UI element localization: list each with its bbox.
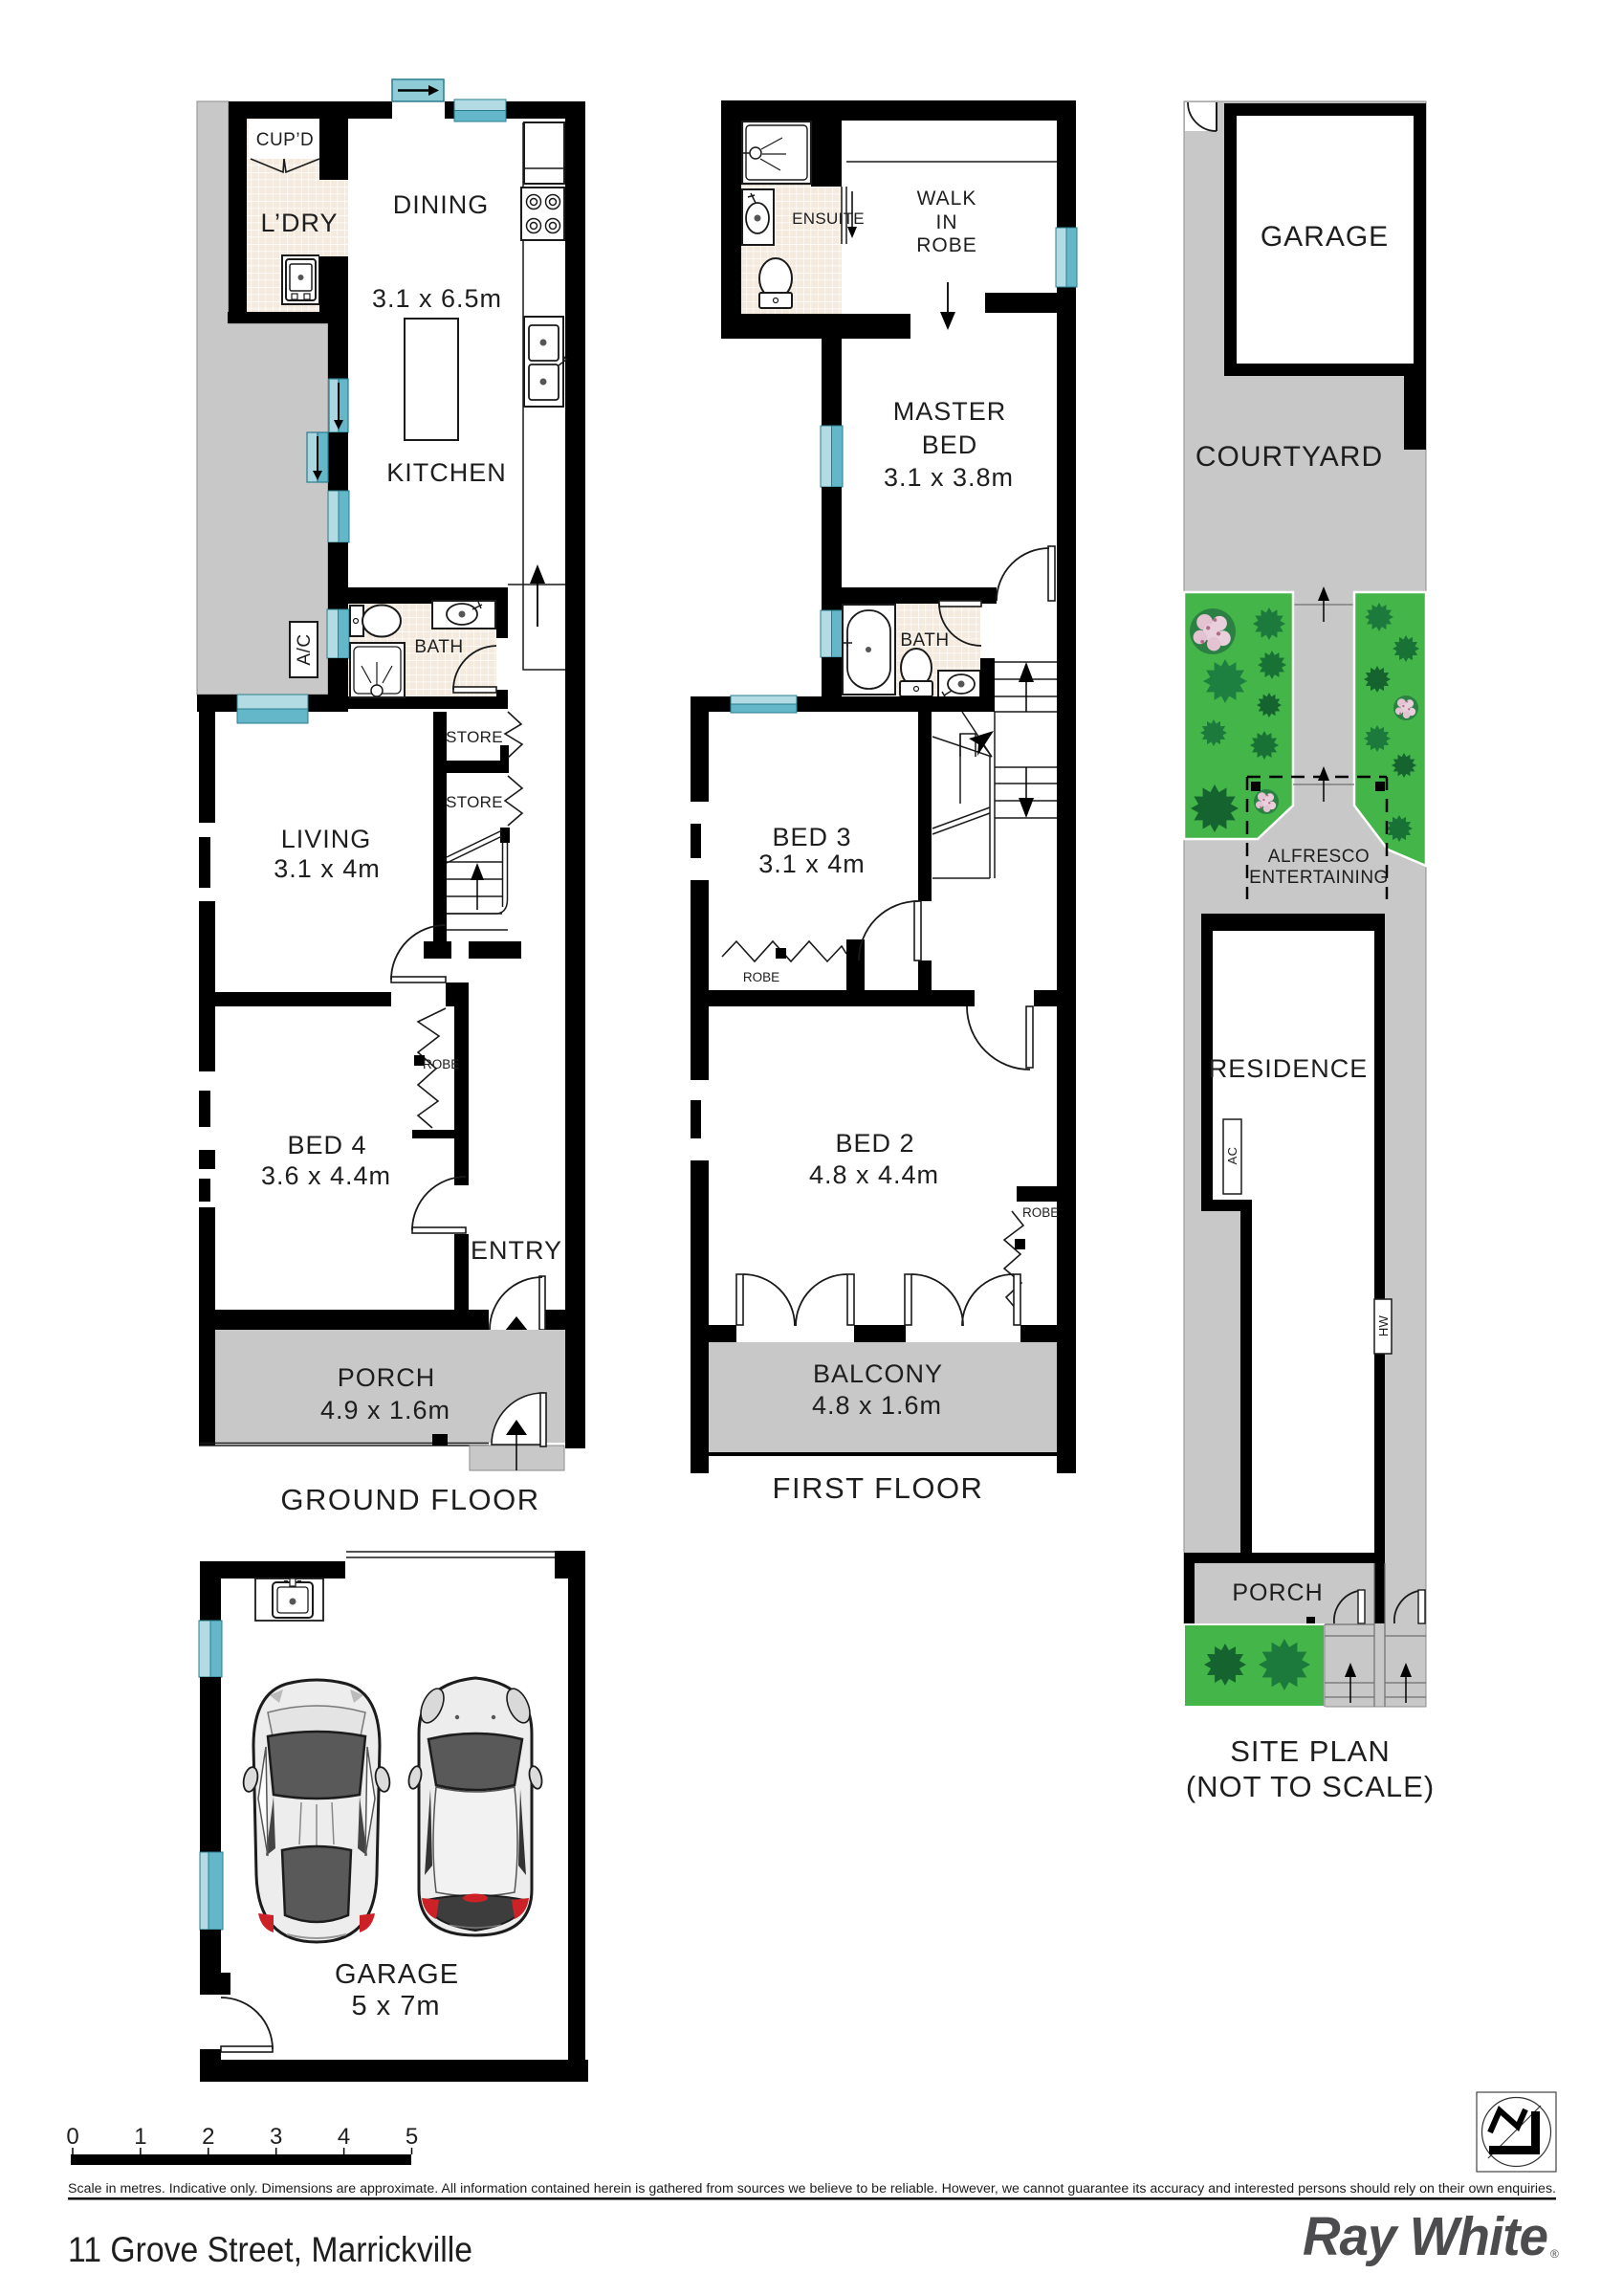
svg-text:BED 4: BED 4 xyxy=(287,1131,366,1159)
svg-text:5 x 7m: 5 x 7m xyxy=(351,1991,440,2021)
svg-text:HW: HW xyxy=(1376,1314,1391,1336)
svg-text:KITCHEN: KITCHEN xyxy=(386,458,507,487)
svg-text:3.1 x 6.5m: 3.1 x 6.5m xyxy=(372,284,502,313)
svg-text:ENTRY: ENTRY xyxy=(471,1236,562,1265)
svg-text:L’DRY: L’DRY xyxy=(260,209,338,237)
svg-text:ROBE: ROBE xyxy=(423,1057,459,1071)
svg-text:GARAGE: GARAGE xyxy=(1261,221,1389,253)
svg-text:Ray White: Ray White xyxy=(1303,2206,1547,2267)
svg-text:PORCH: PORCH xyxy=(1232,1579,1323,1606)
svg-text:COURTYARD: COURTYARD xyxy=(1195,441,1383,473)
svg-text:STORE: STORE xyxy=(446,793,503,811)
svg-text:®: ® xyxy=(1550,2247,1559,2261)
svg-text:FIRST FLOOR: FIRST FLOOR xyxy=(773,1471,984,1505)
svg-text:BALCONY: BALCONY xyxy=(813,1359,943,1388)
svg-text:0: 0 xyxy=(66,2124,78,2150)
svg-text:1: 1 xyxy=(134,2124,146,2150)
svg-text:3.1 x 3.8m: 3.1 x 3.8m xyxy=(884,463,1014,492)
svg-text:AC: AC xyxy=(1225,1147,1239,1165)
svg-text:A/C: A/C xyxy=(295,633,315,665)
svg-text:(NOT TO SCALE): (NOT TO SCALE) xyxy=(1186,1770,1435,1803)
svg-text:ENSUITE: ENSUITE xyxy=(792,210,865,228)
svg-text:11 Grove Street, Marrickville: 11 Grove Street, Marrickville xyxy=(68,2230,472,2269)
svg-text:BATH: BATH xyxy=(900,630,949,651)
svg-text:GROUND FLOOR: GROUND FLOOR xyxy=(280,1483,539,1516)
svg-text:4.8 x 1.6m: 4.8 x 1.6m xyxy=(812,1391,942,1420)
svg-text:Scale in metres. Indicative on: Scale in metres. Indicative only. Dimens… xyxy=(68,2181,1556,2196)
svg-text:4: 4 xyxy=(338,2124,350,2150)
svg-text:ROBE: ROBE xyxy=(916,234,977,256)
svg-text:STORE: STORE xyxy=(446,728,503,746)
svg-text:3.1 x 4m: 3.1 x 4m xyxy=(758,850,866,878)
svg-text:DINING: DINING xyxy=(393,190,490,219)
svg-text:ROBE: ROBE xyxy=(1022,1205,1059,1220)
svg-text:IN: IN xyxy=(936,211,958,233)
svg-text:5: 5 xyxy=(406,2124,418,2150)
svg-text:MASTER: MASTER xyxy=(893,397,1007,426)
svg-text:PORCH: PORCH xyxy=(338,1363,436,1392)
svg-text:4.9 x 1.6m: 4.9 x 1.6m xyxy=(320,1396,450,1424)
svg-text:CUP’D: CUP’D xyxy=(256,130,315,150)
svg-text:BED 3: BED 3 xyxy=(772,823,851,851)
svg-text:LIVING: LIVING xyxy=(281,825,372,853)
svg-text:ALFRESCO: ALFRESCO xyxy=(1268,847,1370,867)
svg-text:BED 2: BED 2 xyxy=(835,1129,914,1158)
svg-text:ENTERTAINING: ENTERTAINING xyxy=(1249,868,1389,888)
svg-text:BATH: BATH xyxy=(414,637,463,657)
svg-text:BED: BED xyxy=(922,430,978,459)
svg-text:GARAGE: GARAGE xyxy=(335,1959,459,1990)
svg-text:ROBE: ROBE xyxy=(743,970,779,984)
svg-text:SITE PLAN: SITE PLAN xyxy=(1230,1734,1391,1768)
svg-text:3.1 x 4m: 3.1 x 4m xyxy=(274,854,381,883)
svg-text:4.8 x 4.4m: 4.8 x 4.4m xyxy=(809,1160,939,1189)
svg-text:3: 3 xyxy=(270,2124,282,2150)
svg-text:3.6 x 4.4m: 3.6 x 4.4m xyxy=(261,1161,391,1190)
svg-text:2: 2 xyxy=(202,2124,214,2150)
svg-text:WALK: WALK xyxy=(917,188,977,210)
svg-text:RESIDENCE: RESIDENCE xyxy=(1209,1054,1369,1083)
